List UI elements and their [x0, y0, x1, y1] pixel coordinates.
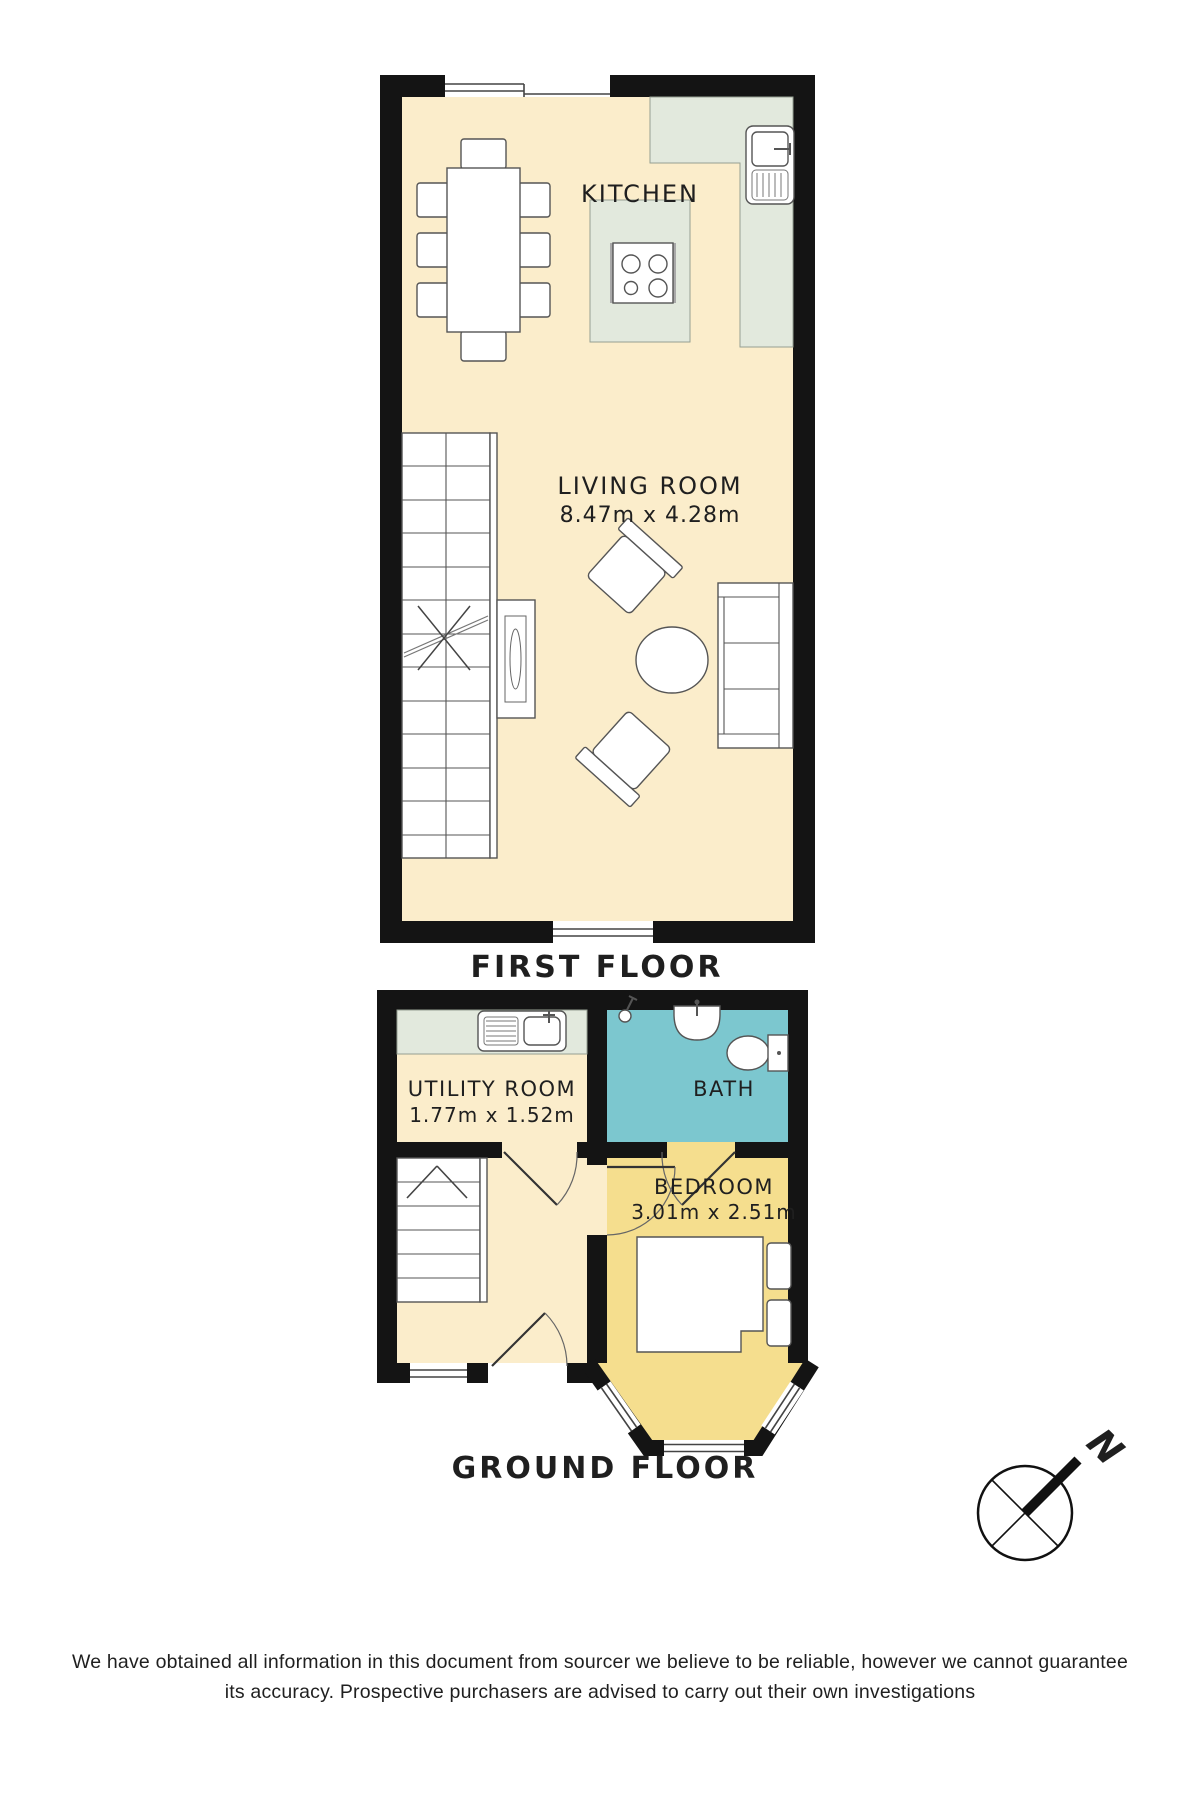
- utility-sink-icon: [478, 1011, 566, 1051]
- sofa-icon: [718, 583, 793, 748]
- kitchen-island-hob-icon: [590, 200, 690, 342]
- utility-room-label: UTILITY ROOM: [408, 1077, 576, 1101]
- window-icon: [445, 75, 524, 97]
- dining-chair: [417, 233, 449, 267]
- dining-chair: [417, 183, 449, 217]
- utility-room-dimensions: 1.77m x 1.52m: [409, 1103, 575, 1127]
- first-floor-section-label: FIRST FLOOR: [471, 950, 724, 985]
- dining-chair: [518, 233, 550, 267]
- bedroom-dimensions: 3.01m x 2.51m: [631, 1200, 797, 1224]
- internal-wall: [587, 1010, 607, 1142]
- dining-chair: [461, 331, 506, 361]
- bedroom-label: BEDROOM: [654, 1175, 774, 1199]
- floorplan-svg: KITCHEN LIVING ROOM 8.47m x 4.28m FIRST …: [0, 0, 1200, 1800]
- patio-opening-icon: [524, 75, 610, 97]
- stairs-icon: [402, 433, 497, 858]
- toilet-icon: [727, 1035, 788, 1071]
- bay-window-icon: [588, 1363, 812, 1452]
- window-icon: [410, 1363, 467, 1383]
- dining-chair: [518, 183, 550, 217]
- disclaimer-line-1: We have obtained all information in this…: [72, 1651, 1128, 1673]
- floorplan-page: KITCHEN LIVING ROOM 8.47m x 4.28m FIRST …: [0, 0, 1200, 1800]
- stairs-icon: [397, 1158, 487, 1302]
- wash-basin-icon: [674, 1000, 720, 1041]
- disclaimer-line-2: its accuracy. Prospective purchasers are…: [225, 1681, 976, 1703]
- disclaimer: We have obtained all information in this…: [72, 1651, 1128, 1703]
- living-room-dimensions: 8.47m x 4.28m: [560, 503, 741, 528]
- dining-chair: [417, 283, 449, 317]
- kitchen-label: KITCHEN: [581, 180, 699, 208]
- pillow-icon: [767, 1243, 791, 1289]
- dining-chair: [461, 139, 506, 169]
- coffee-table-icon: [636, 627, 708, 693]
- window-icon: [553, 921, 653, 943]
- pillow-icon: [767, 1300, 791, 1346]
- ground-floor-plan: UTILITY ROOM 1.77m x 1.52m BATH BEDROOM …: [377, 990, 812, 1452]
- living-room-label: LIVING ROOM: [557, 472, 742, 500]
- first-floor-plan: KITCHEN LIVING ROOM 8.47m x 4.28m: [380, 75, 815, 943]
- compass-icon: N: [978, 1420, 1132, 1560]
- kitchen-sink-icon: [746, 126, 794, 204]
- dining-table: [447, 168, 520, 332]
- compass-north-label: N: [1078, 1420, 1132, 1474]
- dining-chair: [518, 283, 550, 317]
- ground-floor-section-label: GROUND FLOOR: [452, 1451, 759, 1486]
- bath-label: BATH: [693, 1077, 755, 1101]
- console-table-icon: [497, 600, 535, 718]
